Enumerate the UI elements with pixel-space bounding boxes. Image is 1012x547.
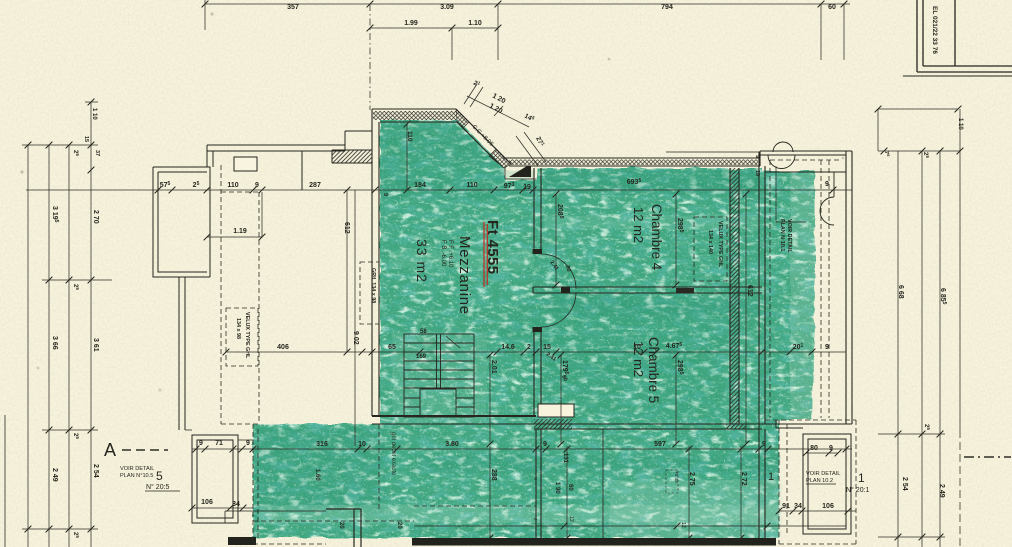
svg-text:110: 110 (227, 182, 238, 189)
svg-text:9: 9 (762, 441, 766, 448)
svg-text:60: 60 (567, 484, 573, 491)
svg-text:80: 80 (810, 445, 818, 452)
svg-text:316: 316 (316, 441, 328, 448)
svg-text:VOIR DETAIL: VOIR DETAIL (786, 219, 792, 253)
svg-text:9: 9 (754, 155, 760, 158)
svg-text:612: 612 (746, 285, 753, 297)
svg-text:71: 71 (215, 440, 223, 447)
svg-text:Chambre 4: Chambre 4 (649, 204, 664, 271)
svg-text:12 m2: 12 m2 (631, 207, 646, 243)
svg-text:2 54: 2 54 (901, 477, 908, 491)
svg-text:131: 131 (562, 453, 568, 464)
svg-text:6 68: 6 68 (897, 285, 904, 299)
svg-text:9: 9 (825, 181, 829, 188)
svg-text:1 10: 1 10 (91, 108, 97, 120)
svg-text:794: 794 (661, 4, 673, 11)
svg-text:406: 406 (277, 344, 289, 351)
svg-text:184: 184 (414, 182, 426, 189)
svg-text:2 49: 2 49 (51, 468, 58, 482)
svg-text:PLAN 10.2: PLAN 10.2 (806, 478, 833, 484)
svg-text:1.19: 1.19 (233, 228, 247, 235)
svg-text:9: 9 (199, 440, 203, 447)
svg-text:Mezzanine: Mezzanine (456, 236, 473, 315)
svg-text:134 x 98: 134 x 98 (235, 318, 241, 339)
svg-text:110: 110 (406, 131, 413, 142)
svg-text:612: 612 (343, 222, 350, 234)
svg-text:34: 34 (794, 503, 802, 510)
svg-text:GRIL 134 x 98: GRIL 134 x 98 (370, 268, 376, 303)
svg-text:A: A (104, 440, 116, 460)
svg-text:33 m2: 33 m2 (414, 239, 430, 283)
svg-text:2 70: 2 70 (92, 210, 99, 224)
svg-text:F B .-6.00: F B .-6.00 (440, 240, 446, 267)
svg-text:12: 12 (680, 522, 686, 528)
svg-text:VELUX TYPE GHL: VELUX TYPE GHL (244, 312, 250, 359)
svg-text:VOIR DETAIL: VOIR DETAIL (806, 471, 840, 477)
svg-text:9: 9 (825, 344, 829, 351)
svg-text:Ft 4555: Ft 4555 (484, 220, 501, 275)
svg-text:1.60: 1.60 (314, 469, 320, 481)
svg-text:37: 37 (94, 150, 100, 156)
svg-text:12 m2: 12 m2 (631, 341, 646, 377)
svg-text:9: 9 (543, 441, 547, 448)
svg-text:1: 1 (858, 471, 865, 485)
svg-text:106: 106 (201, 499, 213, 506)
svg-text:EL 021/22 33 76: EL 021/22 33 76 (931, 6, 938, 54)
svg-text:PLAN N°10.5: PLAN N°10.5 (120, 473, 153, 479)
svg-text:19: 19 (523, 184, 531, 191)
svg-text:2 75: 2 75 (688, 472, 695, 486)
svg-text:20: 20 (396, 522, 402, 529)
svg-text:91: 91 (782, 503, 790, 510)
svg-text:288: 288 (490, 469, 497, 481)
svg-text:3 61: 3 61 (92, 338, 99, 352)
svg-text:65: 65 (388, 344, 396, 351)
svg-text:+5.49: +5.49 (674, 471, 679, 483)
svg-text:10: 10 (358, 441, 366, 448)
svg-text:9 02: 9 02 (352, 331, 359, 345)
svg-text:9: 9 (255, 182, 259, 189)
svg-text:1 90: 1 90 (554, 482, 560, 494)
svg-text:110: 110 (466, 182, 477, 189)
svg-text:3 66: 3 66 (51, 336, 58, 350)
svg-text:5: 5 (156, 469, 163, 483)
svg-text:12: 12 (568, 516, 574, 522)
svg-text:1.10: 1.10 (468, 20, 482, 27)
svg-text:2.01: 2.01 (490, 360, 497, 374)
svg-text:14.6: 14.6 (501, 344, 515, 351)
svg-text:2 49: 2 49 (938, 484, 945, 498)
svg-text:Chambre 5: Chambre 5 (646, 337, 661, 403)
svg-text:19: 19 (754, 170, 760, 176)
svg-text:169: 169 (416, 354, 427, 360)
svg-text:597: 597 (654, 441, 666, 448)
svg-text:1: 1 (768, 471, 774, 483)
svg-text:gril détail exacte: gril détail exacte (390, 432, 396, 476)
svg-text:15: 15 (83, 136, 89, 142)
svg-text:1 10: 1 10 (957, 118, 963, 130)
svg-text:287: 287 (309, 182, 321, 189)
svg-text:20: 20 (338, 522, 344, 529)
svg-text:1.99: 1.99 (404, 20, 418, 27)
svg-text:106: 106 (822, 503, 834, 510)
svg-text:F F .+6.10: F F .+6.10 (447, 240, 453, 268)
svg-text:9: 9 (246, 440, 250, 447)
svg-text:357: 357 (287, 4, 299, 11)
svg-text:15: 15 (543, 344, 551, 351)
svg-text:VELUX TYPE GHL: VELUX TYPE GHL (717, 221, 723, 268)
svg-text:3.09: 3.09 (440, 4, 454, 11)
svg-text:2: 2 (527, 344, 531, 351)
svg-text:34: 34 (232, 501, 240, 508)
svg-text:60: 60 (828, 4, 836, 11)
svg-text:PLAN N·10.1: PLAN N·10.1 (779, 219, 785, 251)
svg-text:3.80: 3.80 (445, 441, 459, 448)
svg-text:9: 9 (829, 445, 833, 452)
svg-text:134 x 140: 134 x 140 (707, 230, 713, 254)
svg-text:2 72: 2 72 (740, 472, 747, 486)
svg-text:VOIR DETAIL: VOIR DETAIL (120, 466, 154, 472)
svg-text:N° 20:5: N° 20:5 (146, 483, 170, 491)
svg-text:2 54: 2 54 (92, 464, 99, 478)
svg-text:N° 20:1: N° 20:1 (846, 486, 870, 494)
svg-text:9: 9 (382, 193, 388, 196)
